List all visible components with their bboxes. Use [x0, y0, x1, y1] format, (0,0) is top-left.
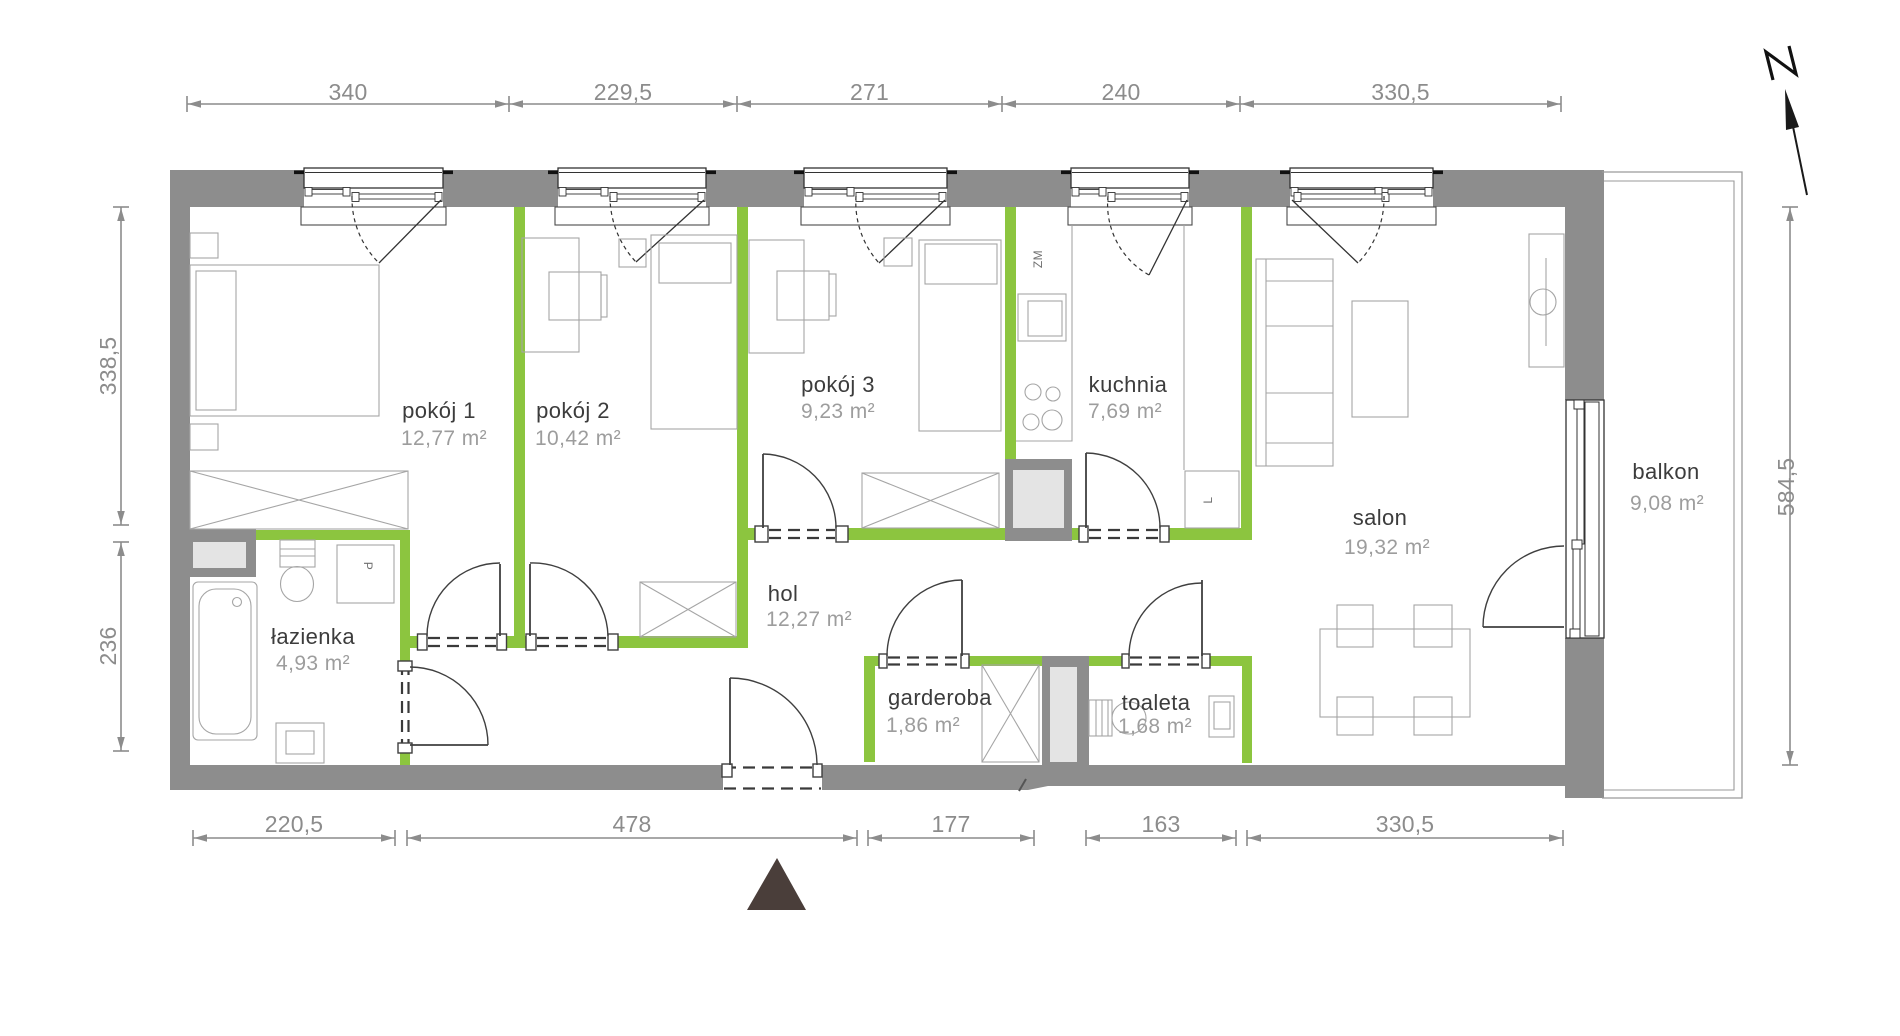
svg-text:584,5: 584,5 — [1773, 458, 1799, 517]
svg-text:pokój 3: pokój 3 — [801, 372, 875, 397]
svg-text:240: 240 — [1102, 79, 1141, 105]
svg-text:163: 163 — [1142, 811, 1181, 837]
svg-text:12,27 m²: 12,27 m² — [766, 608, 852, 631]
svg-text:338,5: 338,5 — [95, 337, 121, 396]
svg-text:toaleta: toaleta — [1122, 690, 1191, 715]
svg-text:330,5: 330,5 — [1371, 79, 1430, 105]
svg-text:236: 236 — [95, 627, 121, 666]
svg-text:pokój 2: pokój 2 — [536, 398, 610, 423]
svg-text:L: L — [1201, 496, 1215, 503]
svg-text:330,5: 330,5 — [1376, 811, 1435, 837]
svg-text:hol: hol — [768, 581, 799, 606]
svg-text:10,42 m²: 10,42 m² — [535, 427, 621, 450]
svg-text:kuchnia: kuchnia — [1089, 372, 1168, 397]
svg-text:garderoba: garderoba — [888, 685, 992, 710]
svg-text:7,69 m²: 7,69 m² — [1088, 400, 1162, 423]
svg-text:229,5: 229,5 — [594, 79, 653, 105]
svg-text:177: 177 — [932, 811, 971, 837]
svg-text:salon: salon — [1353, 505, 1408, 530]
svg-text:478: 478 — [613, 811, 652, 837]
svg-text:340: 340 — [329, 79, 368, 105]
svg-text:220,5: 220,5 — [265, 811, 324, 837]
svg-text:9,23 m²: 9,23 m² — [801, 400, 875, 423]
svg-text:1,86 m²: 1,86 m² — [886, 714, 960, 737]
svg-text:271: 271 — [850, 79, 889, 105]
svg-text:1,68 m²: 1,68 m² — [1118, 715, 1192, 738]
svg-text:12,77 m²: 12,77 m² — [401, 427, 487, 450]
svg-text:ZM: ZM — [1031, 250, 1045, 268]
svg-text:łazienka: łazienka — [271, 624, 355, 649]
svg-text:balkon: balkon — [1632, 459, 1699, 484]
svg-text:4,93 m²: 4,93 m² — [276, 652, 350, 675]
svg-text:P: P — [361, 562, 375, 571]
svg-text:19,32 m²: 19,32 m² — [1344, 536, 1430, 559]
svg-text:pokój 1: pokój 1 — [402, 398, 476, 423]
svg-text:9,08 m²: 9,08 m² — [1630, 492, 1704, 515]
